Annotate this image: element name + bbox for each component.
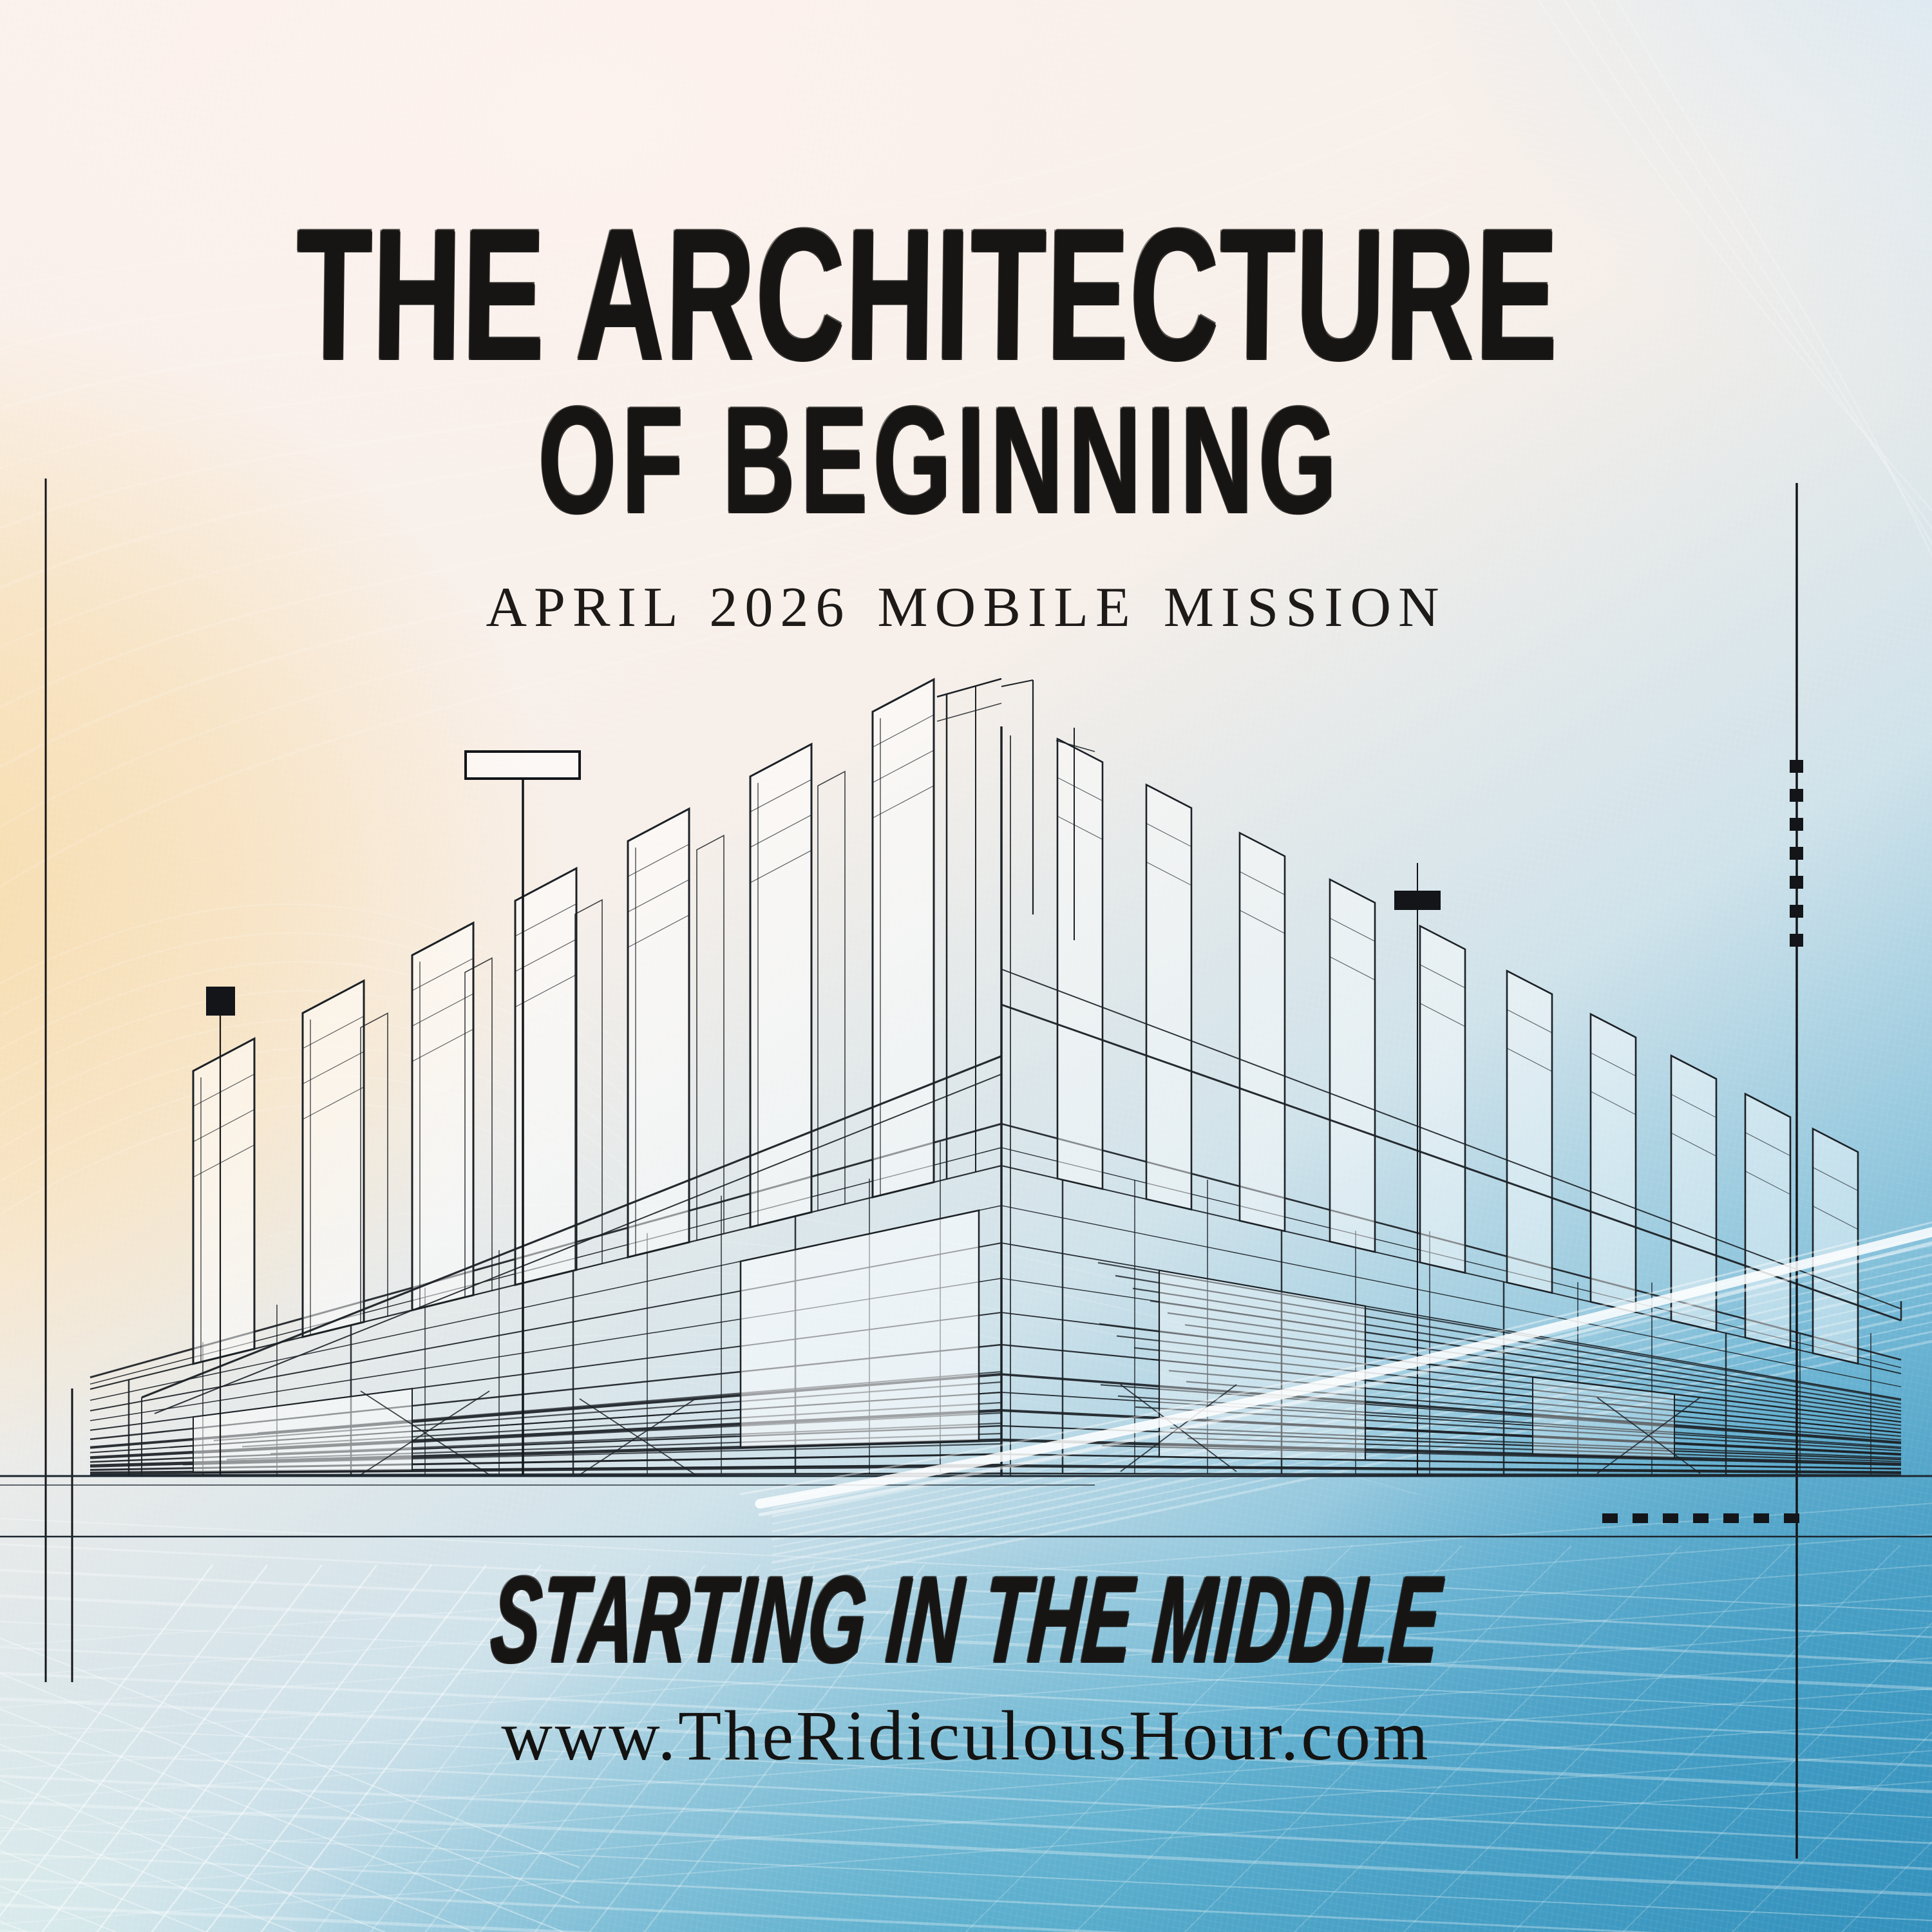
poster-title-line2: OF BEGINNING <box>303 384 1578 535</box>
poster-tagline: STARTING IN THE MIDDLE <box>382 1558 1550 1681</box>
poster-title-line1: THE ARCHITECTURE <box>289 201 1566 388</box>
event-subtitle: APRIL 2026 MOBILE MISSION <box>0 580 1932 636</box>
website-url: www.TheRidiculousHour.com <box>0 1700 1932 1771</box>
poster-canvas: THE ARCHITECTURE OF BEGINNING APRIL 2026… <box>0 0 1932 1932</box>
